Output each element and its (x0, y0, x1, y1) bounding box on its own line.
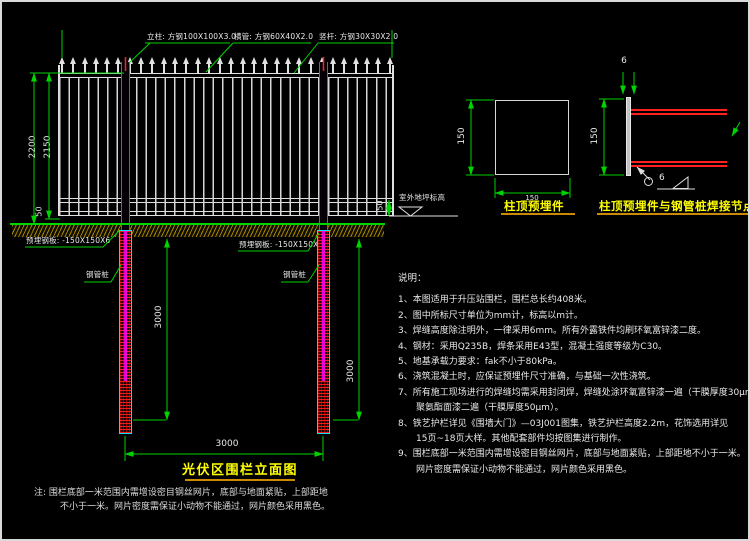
level-symbol-icon (399, 207, 422, 216)
callout-pile-left: 钢管桩 (86, 269, 109, 280)
callout-post: 立柱: 方钢100X100X3.0 (147, 31, 236, 42)
note-line: 1、本图适用于升压站围栏，围栏总长约408米。 (398, 293, 750, 308)
fence-bottom-edge-lower (58, 215, 394, 216)
pipe-wall-top-1 (631, 109, 727, 111)
dim-plate-thickness: 6 (616, 56, 632, 66)
fence-post-right (319, 62, 328, 230)
picket-spear-icon (295, 57, 303, 74)
note-line: 聚氨酯面漆二遍（干膜厚度50μm）。 (398, 401, 750, 416)
pile-core-left (124, 231, 127, 381)
picket-spear-icon (92, 57, 100, 74)
picket-spear-icon (227, 57, 235, 74)
note-line: 2、图中所标尺寸单位为mm计，标高以m计。 (398, 309, 750, 324)
picket-spear-icon (171, 57, 179, 74)
picket-spear-icon (239, 57, 247, 74)
dim-pile-depth-right: 3000 (346, 349, 356, 393)
picket-spear-icon (182, 57, 190, 74)
dim-weld-plate-height: 150 (590, 114, 600, 158)
picket-spear-icon (250, 57, 258, 74)
cad-sheet: 柱顶预埋件 柱顶预埋件与钢管桩焊接节点 立柱: 方钢100X100X3.0 横管… (0, 0, 750, 541)
dim-pile-depth-left: 3000 (154, 295, 164, 339)
embed-plate-label-underline (501, 213, 575, 215)
note-line: 4、钢材：采用Q235B，焊条采用E43型，混凝土强度等级为C30。 (398, 340, 750, 355)
picket-spear-icon (103, 57, 111, 74)
note-line: 15页~18页大样。其他配套部件均按图集进行制作。 (398, 432, 750, 447)
picket-spear-icon (374, 57, 382, 74)
picket-spear-icon (194, 57, 202, 74)
drawing-note-line1: 注: 围栏底部一米范围内需增设密目钢丝网片，底部与地面紧贴，上部距地 (34, 485, 328, 498)
callout-ground-level: 室外地坪标高 (399, 192, 445, 203)
picket-spear-icon (148, 57, 156, 74)
picket-spear-icon (307, 57, 315, 74)
picket-spear-icon (273, 57, 281, 74)
picket-spear-icon (81, 57, 89, 74)
pile-core-right (322, 231, 325, 381)
dim-plate-side-vertical: 150 (457, 114, 467, 158)
note-line: 5、地基承载力要求：fak不小于80kPa。 (398, 355, 750, 370)
fillet-weld-symbol-icon (673, 177, 688, 189)
callout-embed-plate-right: 预埋钢板: -150X150X6 (239, 239, 324, 250)
callout-rail: 横管: 方钢60X40X2.0 (234, 31, 313, 42)
weld-symbol-circle (644, 177, 653, 186)
picket-spear-icon (340, 57, 348, 74)
picket-spear-icon (58, 57, 66, 74)
dim-post-spacing: 3000 (207, 439, 247, 449)
picket-spear-icon (216, 57, 224, 74)
weld-node-detail-label: 柱顶预埋件与钢管桩焊接节点 (599, 198, 750, 214)
picket-spear-icon (69, 57, 77, 74)
notes-heading: 说明： (398, 271, 750, 286)
note-line: 9、围栏底部一米范围内需增设密目钢丝网片，底部与地面紧贴，上部距地不小于一米。 (398, 447, 750, 462)
drawing-note-line2: 不小于一米。网片密度需保证小动物不能通过，网片颜色采用黑色。 (60, 499, 330, 512)
note-line: 7、所有施工现场进行的焊缝均需采用封闭焊，焊缝处涂环氧富锌漆一遍（干膜厚度30μ… (398, 386, 750, 401)
fence-post-left (121, 62, 130, 230)
pipe-wall-top-2 (631, 113, 727, 115)
dim-weld-leg-size: 6 (659, 173, 665, 183)
note-line: 8、铁艺护栏详见《围墙大门》—03J001图集，铁艺护栏高度2.2m，花饰选用详… (398, 417, 750, 432)
drawing-title-underline (185, 479, 295, 481)
picket-spear-icon (386, 57, 394, 74)
callout-pile-right: 钢管桩 (283, 269, 306, 280)
callout-picket: 竖杆: 方钢30X30X2.0 (319, 31, 398, 42)
dim-plate-side-horizontal: 150 (520, 194, 544, 202)
pipe-wall-bottom-2 (631, 165, 727, 167)
fence-picket-row (58, 57, 394, 74)
dim-fence-height-panel: 2150 (43, 125, 53, 169)
note-line: 6、浇筑混凝土时，应保证预埋件尺寸准确，与基础一次性浇筑。 (398, 370, 750, 385)
picket-spear-icon (329, 57, 337, 74)
drawing-title: 光伏区围栏立面图 (172, 459, 308, 478)
picket-spear-icon (205, 57, 213, 74)
picket-spear-icon (284, 57, 292, 74)
fence-vertical-bars (59, 77, 393, 215)
picket-spear-icon (160, 57, 168, 74)
steel-pipe-pile-left (119, 230, 132, 434)
note-line: 3、焊缝高度除注明外，一律采用6mm。所有外露铁件均刷环氧富锌漆二度。 (398, 324, 750, 339)
picket-spear-icon (261, 57, 269, 74)
dim-fence-height-total: 2200 (28, 125, 38, 169)
embed-plate-square (495, 100, 569, 175)
weld-node-label-underline (597, 213, 749, 215)
picket-spear-icon (363, 57, 371, 74)
steel-pipe-pile-right (317, 230, 330, 434)
note-line: 网片密度需保证小动物不能通过，网片颜色采用黑色。 (398, 463, 750, 478)
pipe-wall-bottom-1 (631, 161, 727, 163)
notes-list: 1、本图适用于升压站围栏，围栏总长约408米。2、图中所标尺寸单位为mm计，标高… (398, 293, 750, 478)
picket-spear-icon (352, 57, 360, 74)
general-notes: 说明： 1、本图适用于升压站围栏，围栏总长约408米。2、图中所标尺寸单位为mm… (398, 271, 750, 478)
picket-spear-icon (137, 57, 145, 74)
